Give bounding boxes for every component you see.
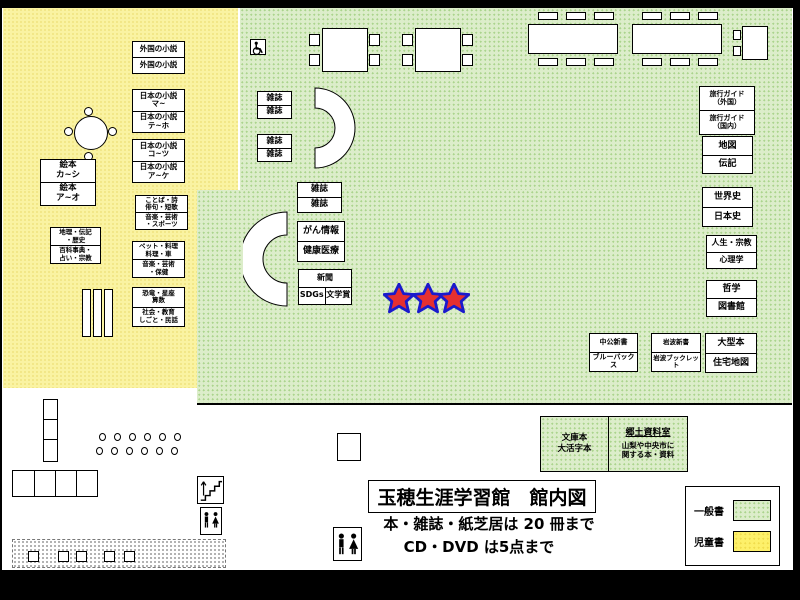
shelf-history: 世界史日本史 — [702, 187, 753, 227]
chair — [462, 34, 473, 46]
star-marker — [383, 283, 415, 315]
wheelchair-icon — [250, 39, 266, 55]
bench — [34, 470, 56, 497]
bench — [76, 470, 98, 497]
chair — [174, 433, 181, 441]
shelf-iwanami-shinsho: 岩波新書岩波ブックレット — [651, 333, 701, 372]
chair — [309, 54, 320, 66]
chair — [594, 12, 614, 20]
legend-general-swatch — [733, 500, 771, 521]
chair — [538, 58, 558, 66]
reading-table — [322, 28, 368, 72]
chair — [141, 447, 148, 455]
magazine-rack: 雑誌雑誌 — [297, 182, 342, 213]
bench — [55, 470, 77, 497]
shelf-japanese-novels-children: 日本の小説コ~ツ日本の小説ア~ケ — [132, 139, 185, 183]
chair — [698, 12, 718, 20]
chair — [402, 34, 413, 46]
shelf-strip — [82, 289, 91, 337]
chair — [402, 54, 413, 66]
chair — [698, 58, 718, 66]
chair — [96, 447, 103, 455]
borrow-rule-av: CD・DVD は5点まで — [373, 536, 585, 557]
chair — [538, 12, 558, 20]
chair — [114, 433, 121, 441]
chair — [642, 12, 662, 20]
bench — [12, 470, 35, 497]
shelf-philosophy: 哲学図書館 — [706, 280, 757, 317]
chair — [309, 34, 320, 46]
letterbox-bar — [0, 0, 800, 8]
chair — [670, 12, 690, 20]
chair — [670, 58, 690, 66]
chair — [159, 433, 166, 441]
local-materials-room: 文庫本 大活字本 郷土資料室 山梨や中央市に 関する本・資料 — [540, 416, 688, 472]
chair — [733, 30, 741, 40]
shelf-dinosaurs-society: 恐竜・星座算数社会・教育しごと・民話 — [132, 287, 185, 327]
mat-cushion — [58, 551, 69, 562]
shelf-travel-guides: 旅行ガイド（外国）旅行ガイド（国内） — [699, 86, 755, 135]
mat-cushion — [28, 551, 39, 562]
chair — [462, 54, 473, 66]
shelf-chuko-shinsho: 中公新書ブルーバックス — [589, 333, 638, 372]
reading-table — [632, 24, 722, 54]
legend-children-swatch — [733, 531, 771, 552]
chair — [129, 433, 136, 441]
counter-extension — [337, 433, 361, 461]
kyodo-desc: 関する本・資料 — [609, 450, 687, 460]
chair — [108, 127, 117, 136]
letterbox-bar — [793, 0, 800, 600]
borrow-rule-books: 本・雑誌・紙芝居は 20 冊まで — [373, 513, 605, 534]
reading-table — [742, 26, 768, 60]
legend-general-label: 一般書 — [694, 503, 724, 518]
paperback-large-print-shelf: 文庫本 大活字本 — [541, 417, 609, 471]
reading-table — [415, 28, 461, 72]
chair — [566, 12, 586, 20]
reading-table — [528, 24, 618, 54]
shelf-picture-books: 絵本カ~シ絵本ア~オ — [40, 159, 96, 206]
mat-cushion — [124, 551, 135, 562]
letterbox-bar — [0, 0, 2, 600]
shelf-japanese-novels-children: 日本の小説マ~日本の小説テ~ホ — [132, 89, 185, 133]
stairs-icon — [197, 476, 224, 504]
shelf-maps-biography: 地図伝記 — [702, 136, 753, 174]
cancer-info-health-shelf: がん情報健康医療 — [297, 221, 345, 262]
chair — [64, 127, 73, 136]
chair — [111, 447, 118, 455]
chair — [156, 447, 163, 455]
sofa-crescent — [243, 211, 289, 307]
mat-cushion — [76, 551, 87, 562]
chair — [369, 34, 380, 46]
newspaper-sdgs-shelf: 新聞SDGs文学賞 — [298, 269, 352, 305]
toilet-icon — [200, 507, 222, 535]
star-marker — [438, 283, 470, 315]
shelf-strip — [43, 439, 58, 462]
shelf-strip — [43, 419, 58, 440]
legend-children-label: 児童書 — [694, 534, 724, 549]
map-title: 玉穂生涯学習館 館内図 — [368, 480, 596, 513]
shelf-life-religion: 人生・宗教心理学 — [706, 235, 757, 269]
magazine-rack: 雑誌雑誌 — [257, 91, 292, 119]
shelf-strip — [93, 289, 102, 337]
round-table — [74, 116, 108, 150]
chair — [594, 58, 614, 66]
mat-cushion — [104, 551, 115, 562]
chair — [144, 433, 151, 441]
shelf-foreign-novels-children: 外国の小説外国の小説 — [132, 41, 185, 74]
legend: 一般書 児童書 — [685, 486, 780, 566]
letterbox-bar — [0, 570, 800, 600]
chair — [566, 58, 586, 66]
chair — [126, 447, 133, 455]
chair — [84, 107, 93, 116]
shelf-strip — [104, 289, 113, 337]
shelf-pets-cooking: ペット・料理料理・車音楽・芸術・保健 — [132, 241, 185, 278]
kyodo-room-title: 郷土資料室 — [609, 428, 687, 440]
library-floor-map: 文庫本 大活字本 郷土資料室 山梨や中央市に 関する本・資料 玉穂生涯学習館 館… — [0, 0, 800, 600]
toilet-icon — [333, 527, 362, 561]
shelf-large-books: 大型本住宅地図 — [705, 333, 757, 373]
rest-space-mat — [12, 539, 226, 568]
chair — [99, 433, 106, 441]
children-area — [3, 8, 238, 190]
shelf-geography-history: 地理・伝記・歴史百科事典・占い・宗教 — [50, 227, 101, 264]
chair — [369, 54, 380, 66]
shelf-strip — [43, 399, 58, 420]
shelf-words-poetry: ことば・詩俳句・短歌音楽・芸術・スポーツ — [135, 195, 188, 230]
chair — [733, 46, 741, 56]
chair — [171, 447, 178, 455]
chair — [642, 58, 662, 66]
magazine-rack: 雑誌雑誌 — [257, 134, 292, 162]
sofa-crescent — [313, 87, 359, 169]
kyodo-desc: 山梨や中央市に — [609, 441, 687, 451]
